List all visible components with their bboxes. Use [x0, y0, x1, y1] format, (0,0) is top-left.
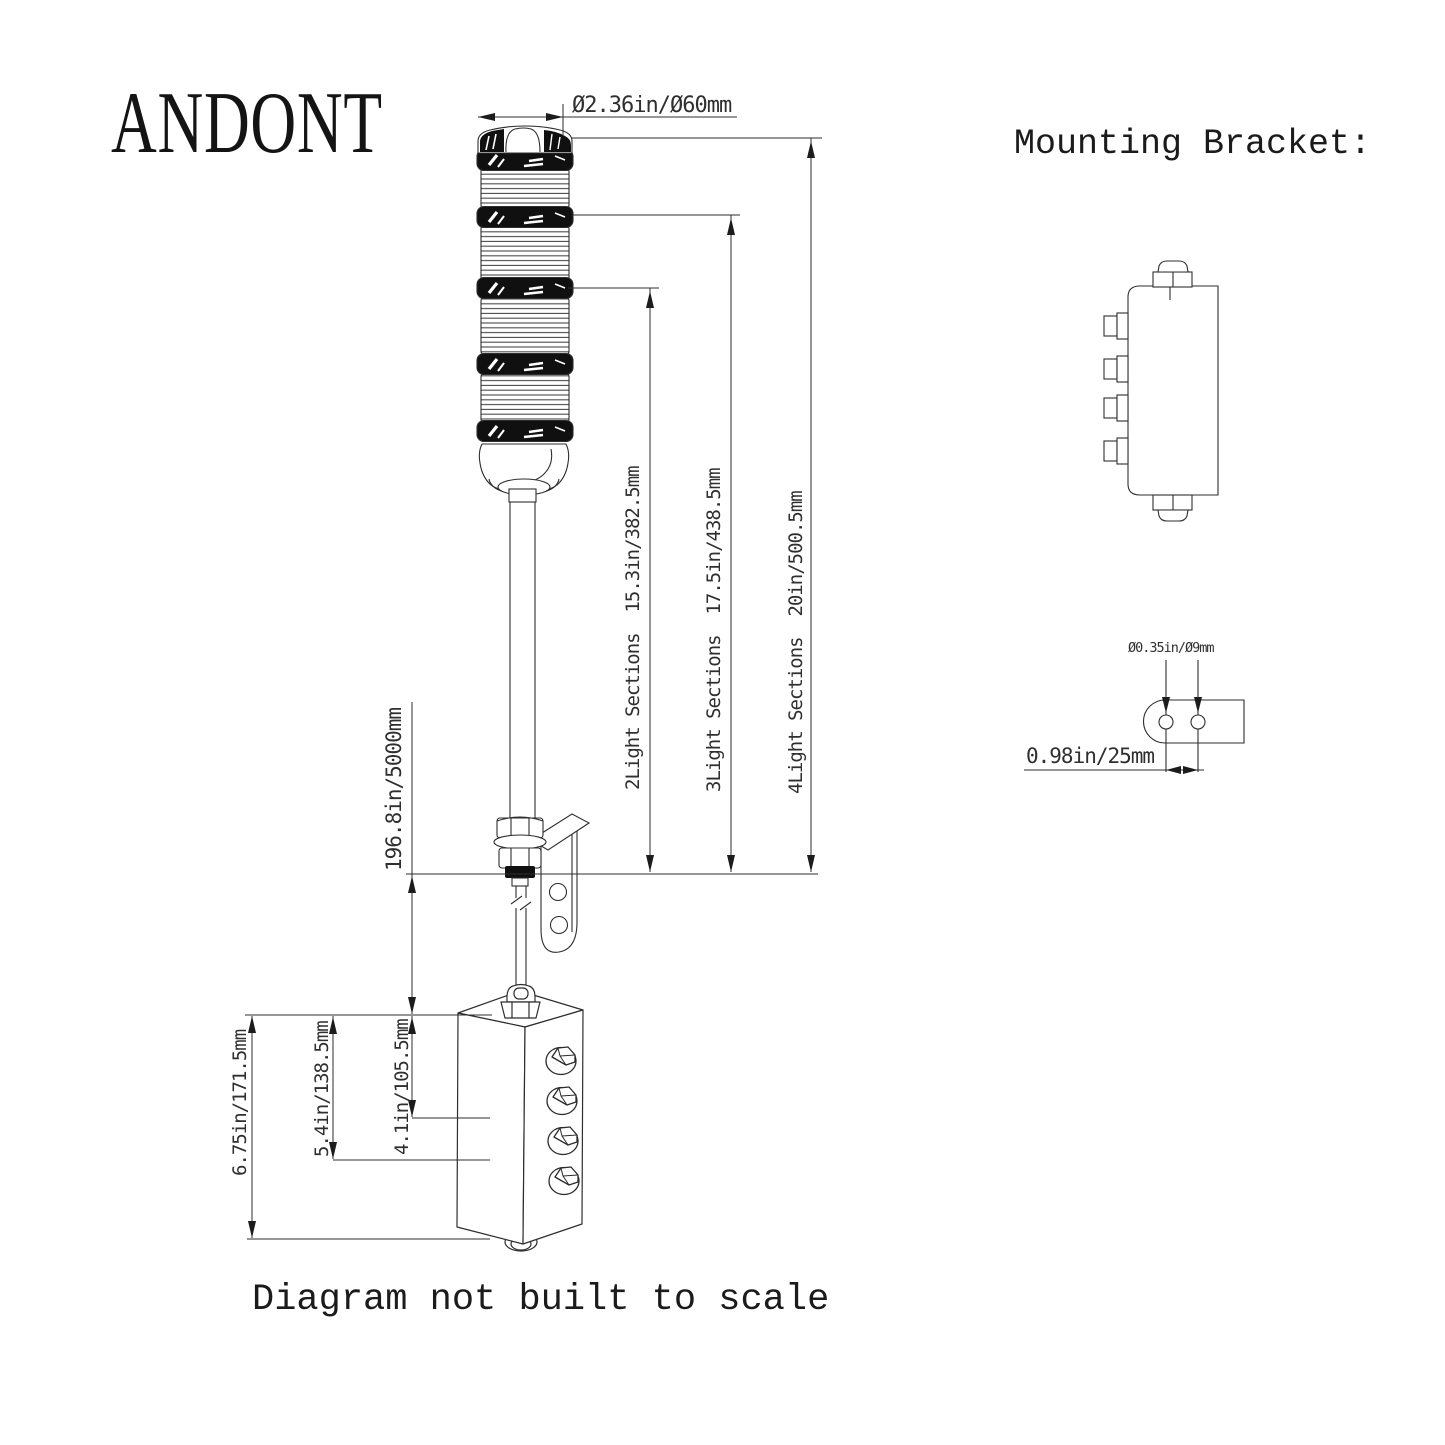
mounting-bracket-title: Mounting Bracket: — [1014, 127, 1371, 162]
dim-cap-diameter: Ø2.36in/Ø60mm — [572, 95, 731, 117]
pole-mount-assembly — [494, 814, 589, 952]
dim-box-total-height: 6.75in/171.5mm — [231, 1030, 250, 1176]
dim-3light-sections: 3Light Sections 17.5in/438.5mm — [705, 468, 724, 792]
box-front-face — [457, 1013, 525, 1244]
cable-stub — [512, 878, 528, 886]
plate-hole — [1159, 715, 1173, 729]
dim-bracket-hole-diameter: Ø0.35in/Ø9mm — [1128, 642, 1214, 656]
side-view-top-gland — [1153, 261, 1192, 287]
dim-box-small-height: 4.1in/105.5mm — [393, 1019, 412, 1155]
tower-section-1 — [481, 166, 569, 210]
brand-logo: ANDONT — [111, 80, 383, 168]
side-view-bottom-gland — [1153, 495, 1192, 521]
cable-break-symbol — [511, 896, 531, 910]
tower-section-3 — [481, 296, 569, 356]
side-view-switches — [1104, 313, 1128, 464]
cable-gland — [501, 985, 540, 1019]
dim-bracket-hole-spacing: 0.98in/25mm — [1026, 746, 1154, 767]
tower-section-2 — [481, 224, 569, 282]
hex-nut-lower — [499, 848, 541, 868]
bracket-hole — [550, 884, 567, 901]
dim-2light-sections: 2Light Sections 15.3in/382.5mm — [624, 466, 643, 790]
bracket-hole — [551, 917, 568, 934]
dim-cable-length: 196.8in/5000mm — [384, 708, 405, 871]
side-view-body — [1128, 286, 1218, 495]
tower-cap — [478, 126, 572, 153]
technical-drawing-page: ANDONT Mounting Bracket: Ø2.36in/Ø60mm 2… — [0, 0, 1445, 1445]
mounting-pole — [510, 494, 535, 820]
dim-4light-sections: 4Light Sections 20in/500.5mm — [787, 491, 806, 794]
dim-box-mid-height: 5.4in/138.5mm — [313, 1021, 332, 1157]
tower-section-4 — [481, 372, 569, 424]
washer — [494, 835, 546, 849]
control-cable — [511, 886, 531, 988]
plate-hole — [1191, 715, 1205, 729]
signal-tower — [477, 126, 573, 820]
box-right-face — [523, 1010, 583, 1244]
tower-base — [479, 444, 568, 502]
threaded-collar — [505, 866, 535, 878]
box-side-view — [1104, 261, 1218, 521]
scale-disclaimer: Diagram not built to scale — [252, 1282, 829, 1319]
